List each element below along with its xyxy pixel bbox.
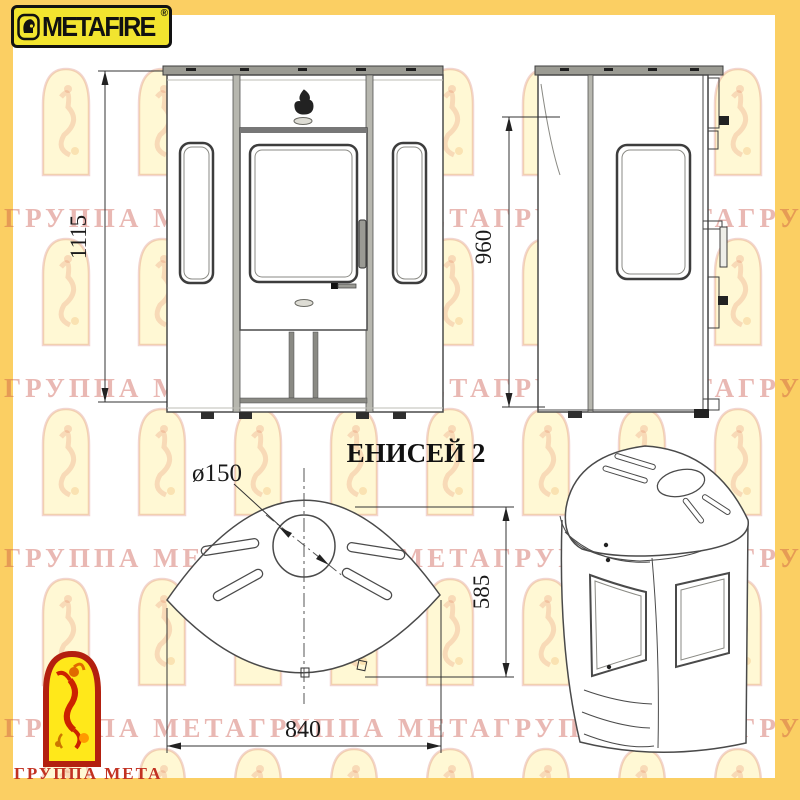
footer-logo-label: ГРУППА МЕТА — [14, 764, 162, 784]
brand-name: METAFIRE — [42, 13, 155, 41]
top-view — [167, 468, 440, 704]
metafire-logo-badge: METAFIRE ® — [11, 5, 172, 48]
dim-label-960: 960 — [471, 230, 496, 265]
dim-label-840: 840 — [285, 717, 321, 743]
dimension-front-height: 1115 — [66, 71, 167, 402]
dim-label-1115: 1115 — [66, 215, 91, 259]
drawing-sheet: ГРУППА МЕТАГРУППА МЕТАГРУППА МЕТАГРУППА … — [0, 0, 800, 800]
model-title: ЕНИСЕЙ 2 — [347, 438, 486, 468]
knight-helmet-icon — [17, 13, 40, 41]
perspective-view — [560, 446, 748, 752]
door-handle — [359, 220, 366, 268]
registered-mark: ® — [161, 8, 168, 19]
stove-technical-drawing: 1115 — [0, 0, 800, 800]
dancing-jester-arch-icon — [40, 648, 104, 768]
dim-label-585: 585 — [469, 575, 494, 610]
side-view — [535, 66, 729, 418]
front-view — [163, 66, 443, 419]
dim-label-o150: ø150 — [192, 460, 242, 487]
